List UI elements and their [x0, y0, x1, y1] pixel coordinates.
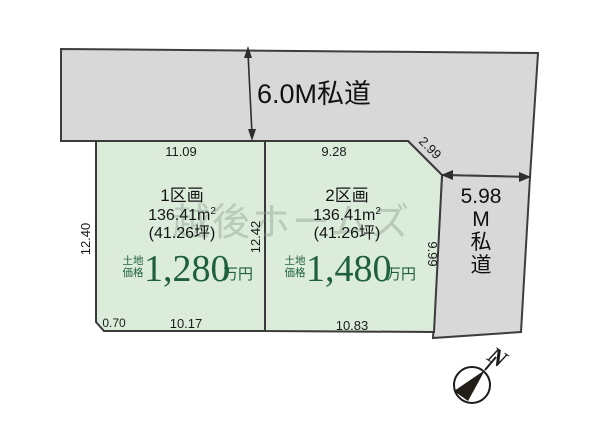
plot-1-price-label-bottom: 価格: [123, 266, 144, 279]
plot-1-area: 136.41m2: [148, 206, 216, 224]
plot-2-tsubo: (41.26坪): [314, 224, 381, 242]
compass: N: [454, 342, 513, 403]
dim-plot2-right: 9.99: [425, 241, 440, 266]
plot-1-price-unit: 万円: [223, 266, 253, 283]
dim-plot2-bottom: 10.83: [336, 318, 369, 333]
plot-2-price: 1,480: [306, 248, 392, 290]
land-plot-diagram: 越後ホームズ 6.0M私道 5.98 M 私 道 11.09 9.28 2.99…: [0, 0, 600, 441]
plot-1-tsubo: (41.26坪): [149, 224, 216, 242]
plot-2-name: 2区画: [325, 186, 368, 205]
top-road-label: 6.0M私道: [257, 79, 371, 109]
plot-2-price-label-bottom: 価格: [285, 266, 306, 279]
plot-1-price-label-top: 土地: [123, 254, 144, 267]
right-road-label-line2: M: [472, 208, 490, 231]
plot-1-price: 1,280: [144, 248, 230, 290]
right-road-label-line3: 私: [471, 231, 492, 254]
plot-2-price-label-top: 土地: [285, 254, 306, 267]
plot-2-price-unit: 万円: [386, 266, 416, 283]
plot-2-area: 136.41m2: [313, 206, 381, 224]
plot-1-name: 1区画: [160, 186, 203, 205]
diagram-canvas: 越後ホームズ 6.0M私道 5.98 M 私 道 11.09 9.28 2.99…: [0, 0, 600, 441]
right-road-label-line4: 道: [471, 254, 492, 277]
dim-plot1-bottom: 10.17: [170, 316, 203, 331]
dim-divider: 12.42: [248, 221, 263, 254]
dim-plot1-bottom-left: 0.70: [102, 316, 126, 330]
dim-plot1-top: 11.09: [165, 144, 197, 159]
right-road-label-line1: 5.98: [461, 185, 502, 208]
dim-plot2-top: 9.28: [321, 144, 346, 159]
dim-plot1-left: 12.40: [78, 223, 93, 256]
